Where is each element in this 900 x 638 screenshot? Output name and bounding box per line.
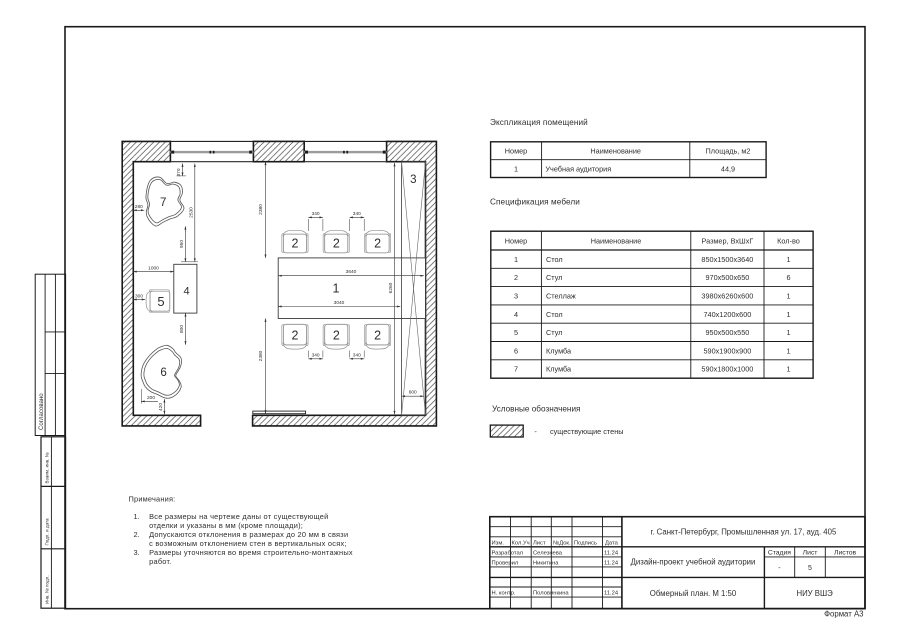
svg-text:2: 2 (292, 236, 299, 250)
svg-text:590х1800х1000: 590х1800х1000 (701, 365, 753, 374)
svg-text:Размер, ВхШхГ: Размер, ВхШхГ (701, 236, 753, 245)
svg-text:5: 5 (808, 565, 812, 572)
svg-text:Инв. № подл.: Инв. № подл. (45, 575, 50, 604)
svg-text:3: 3 (514, 292, 518, 301)
svg-text:Обмерный план. М 1:50: Обмерный план. М 1:50 (650, 589, 737, 598)
svg-text:2530: 2530 (188, 207, 194, 218)
svg-text:г. Санкт-Петербург, Промышленн: г. Санкт-Петербург, Промышленная ул. 17,… (650, 528, 837, 537)
svg-text:Примечания:: Примечания: (129, 495, 176, 504)
svg-text:950: 950 (179, 240, 185, 248)
svg-text:800: 800 (179, 325, 185, 333)
svg-text:3.: 3. (134, 548, 140, 557)
svg-text:с возможным отклонением стен в: с возможным отклонением стен в вертикаль… (149, 539, 347, 548)
svg-text:1: 1 (786, 310, 790, 319)
svg-text:Стол: Стол (546, 310, 563, 319)
svg-text:340: 340 (353, 353, 361, 359)
svg-text:600: 600 (409, 390, 417, 396)
svg-text:1: 1 (786, 328, 790, 337)
svg-text:Клумба: Клумба (546, 365, 572, 374)
svg-text:Наименование: Наименование (591, 236, 642, 245)
svg-text:Листов: Листов (834, 550, 856, 557)
svg-text:11.24: 11.24 (604, 560, 619, 566)
svg-text:Лист: Лист (803, 550, 818, 557)
svg-text:300: 300 (135, 293, 143, 299)
svg-text:Номер: Номер (505, 147, 527, 156)
svg-text:работ.: работ. (149, 557, 172, 566)
svg-text:11.24: 11.24 (604, 550, 619, 556)
svg-text:3040: 3040 (334, 300, 345, 306)
svg-text:Дата: Дата (605, 540, 619, 546)
svg-text:970х500х650: 970х500х650 (705, 273, 749, 282)
svg-text:340: 340 (312, 211, 320, 217)
svg-text:2380: 2380 (258, 350, 264, 361)
svg-text:4: 4 (184, 285, 190, 297)
svg-text:Все размеры на чертеже даны от: Все размеры на чертеже даны от существую… (149, 512, 328, 521)
svg-text:Проверил: Проверил (492, 560, 519, 566)
svg-text:6: 6 (786, 273, 790, 282)
svg-text:1: 1 (786, 365, 790, 374)
svg-text:1000: 1000 (148, 265, 159, 271)
svg-text:Номер: Номер (505, 236, 527, 245)
svg-text:Спецификация мебели: Спецификация мебели (490, 198, 580, 207)
svg-text:5: 5 (514, 328, 518, 337)
svg-text:Стул: Стул (546, 273, 562, 282)
svg-text:740х1200х600: 740х1200х600 (703, 310, 751, 319)
svg-text:200: 200 (147, 395, 155, 401)
svg-text:2: 2 (333, 236, 340, 250)
svg-text:11.24: 11.24 (604, 591, 619, 597)
svg-text:Никитина: Никитина (533, 560, 559, 566)
svg-text:отделки и указаны в мм (кроме: отделки и указаны в мм (кроме площади); (149, 521, 303, 530)
svg-text:Подп. и дата: Подп. и дата (45, 518, 50, 546)
svg-text:Кол.Уч: Кол.Уч (512, 540, 530, 546)
svg-text:существующие стены: существующие стены (550, 427, 624, 436)
svg-text:Экспликация помещений: Экспликация помещений (490, 118, 588, 127)
svg-text:6: 6 (514, 346, 518, 355)
svg-text:Подпись: Подпись (574, 540, 597, 546)
svg-text:Дизайн-проект учебной аудитори: Дизайн-проект учебной аудитории (631, 558, 756, 567)
svg-text:3640: 3640 (346, 269, 357, 275)
svg-text:1: 1 (333, 281, 340, 295)
svg-text:Стеллаж: Стеллаж (546, 292, 576, 301)
svg-text:1: 1 (786, 292, 790, 301)
svg-text:Взаим. инв. №: Взаим. инв. № (45, 452, 50, 483)
svg-text:1: 1 (514, 164, 518, 173)
svg-text:Н. контр.: Н. контр. (492, 591, 516, 597)
svg-text:340: 340 (312, 353, 320, 359)
svg-text:Размеры уточняются во время ст: Размеры уточняются во время строительно-… (149, 548, 353, 557)
svg-text:6: 6 (160, 367, 166, 379)
svg-text:44,9: 44,9 (721, 164, 735, 173)
svg-text:Клумба: Клумба (546, 346, 572, 355)
svg-text:1: 1 (514, 255, 518, 264)
svg-text:Половинкина: Половинкина (533, 591, 569, 597)
svg-text:Разработал: Разработал (492, 550, 524, 556)
svg-text:Учебная аудитория: Учебная аудитория (545, 164, 611, 173)
svg-text:НИУ ВШЭ: НИУ ВШЭ (796, 589, 833, 598)
svg-text:Стадия: Стадия (768, 550, 791, 557)
svg-text:Стул: Стул (546, 328, 562, 337)
svg-text:Согласовано: Согласовано (38, 393, 45, 430)
svg-text:4: 4 (514, 310, 518, 319)
svg-text:2.: 2. (134, 530, 140, 539)
svg-text:Площадь, м2: Площадь, м2 (706, 147, 751, 156)
svg-text:3980х6260х600: 3980х6260х600 (701, 292, 753, 301)
svg-text:6260: 6260 (388, 282, 394, 293)
svg-text:Кол-во: Кол-во (777, 236, 800, 245)
svg-text:280: 280 (135, 204, 143, 210)
svg-text:850х1500х3640: 850х1500х3640 (701, 255, 753, 264)
svg-text:Стол: Стол (546, 255, 563, 264)
svg-text:1.: 1. (134, 512, 140, 521)
svg-text:5: 5 (157, 294, 164, 309)
svg-text:Допускаются отклонения в разме: Допускаются отклонения в размерах до 20 … (149, 530, 348, 539)
svg-text:Изм.: Изм. (492, 540, 505, 546)
svg-text:1: 1 (786, 255, 790, 264)
svg-text:2: 2 (514, 273, 518, 282)
svg-text:2: 2 (374, 236, 381, 250)
svg-text:Лист: Лист (533, 540, 546, 546)
svg-text:1: 1 (786, 346, 790, 355)
svg-text:7: 7 (160, 197, 166, 209)
svg-text:2: 2 (292, 328, 299, 342)
svg-text:Селезнева: Селезнева (533, 550, 563, 556)
svg-text:590х1900х900: 590х1900х900 (703, 346, 751, 355)
svg-text:7: 7 (514, 365, 518, 374)
svg-text:2: 2 (333, 328, 340, 342)
svg-text:3: 3 (410, 174, 416, 186)
svg-text:2380: 2380 (258, 204, 264, 215)
svg-text:420: 420 (158, 403, 164, 411)
svg-text:Формат А3: Формат А3 (824, 610, 863, 619)
svg-text:Условные обозначения: Условные обозначения (492, 405, 580, 414)
svg-text:2: 2 (374, 328, 381, 342)
svg-text:Наименование: Наименование (590, 147, 641, 156)
svg-text:№Док.: №Док. (553, 540, 571, 546)
svg-text:370: 370 (176, 168, 182, 176)
svg-text:950х500х550: 950х500х550 (705, 328, 749, 337)
svg-text:340: 340 (353, 211, 361, 217)
